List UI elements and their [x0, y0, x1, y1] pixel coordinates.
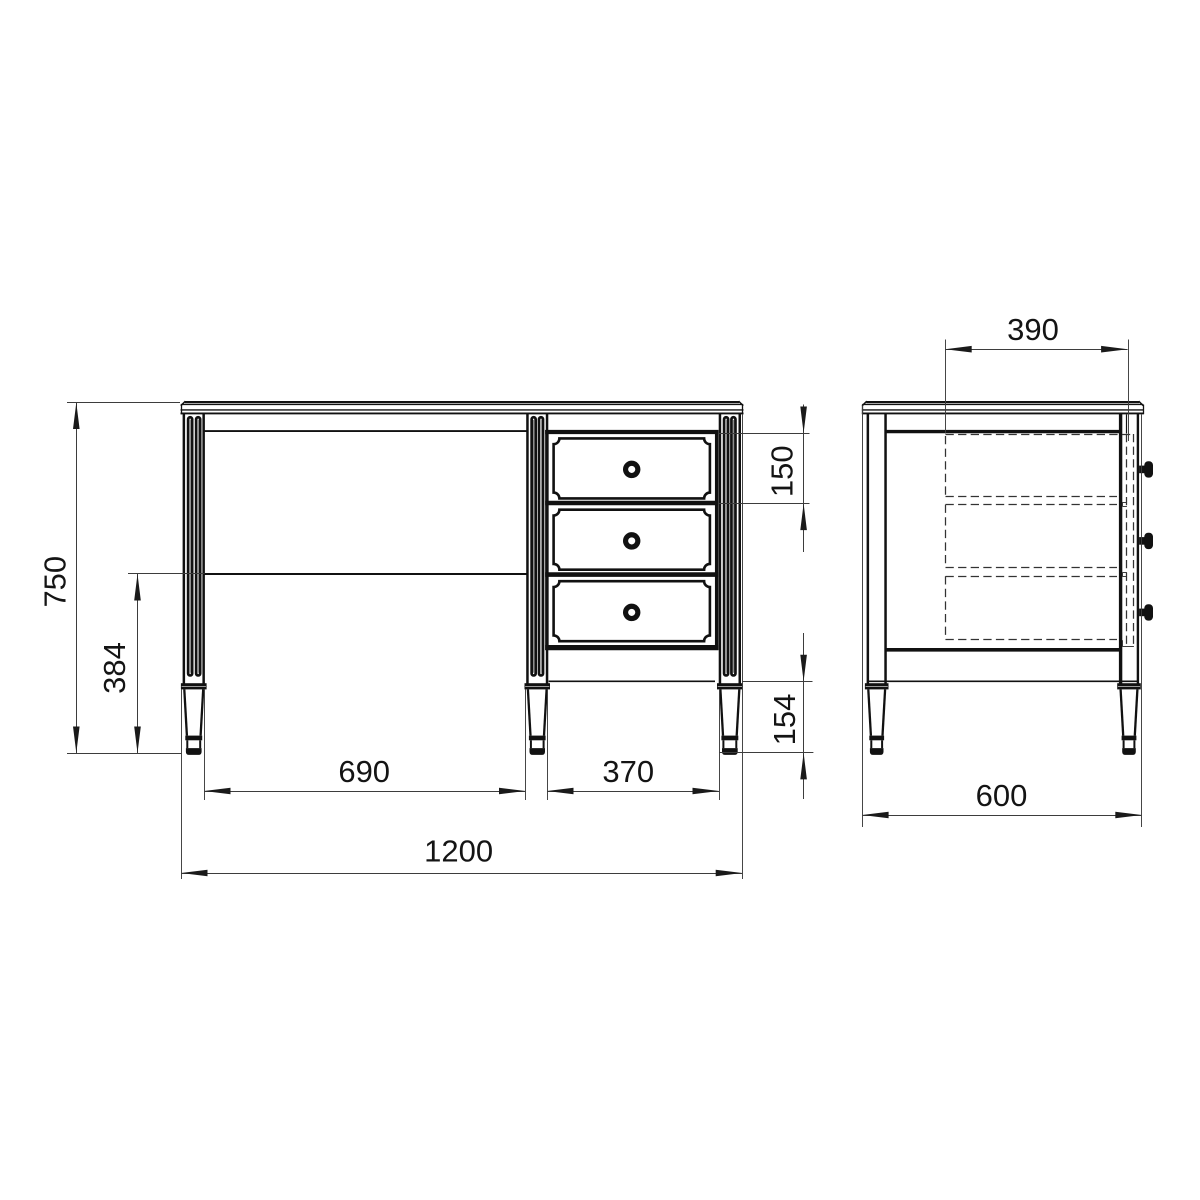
svg-text:690: 690: [338, 754, 390, 789]
svg-text:384: 384: [97, 642, 132, 694]
svg-text:154: 154: [767, 694, 802, 746]
svg-text:1200: 1200: [424, 834, 493, 869]
svg-text:370: 370: [602, 754, 654, 789]
svg-text:750: 750: [38, 556, 73, 608]
svg-text:390: 390: [1007, 312, 1059, 347]
svg-text:150: 150: [765, 445, 800, 497]
svg-text:600: 600: [976, 778, 1028, 813]
